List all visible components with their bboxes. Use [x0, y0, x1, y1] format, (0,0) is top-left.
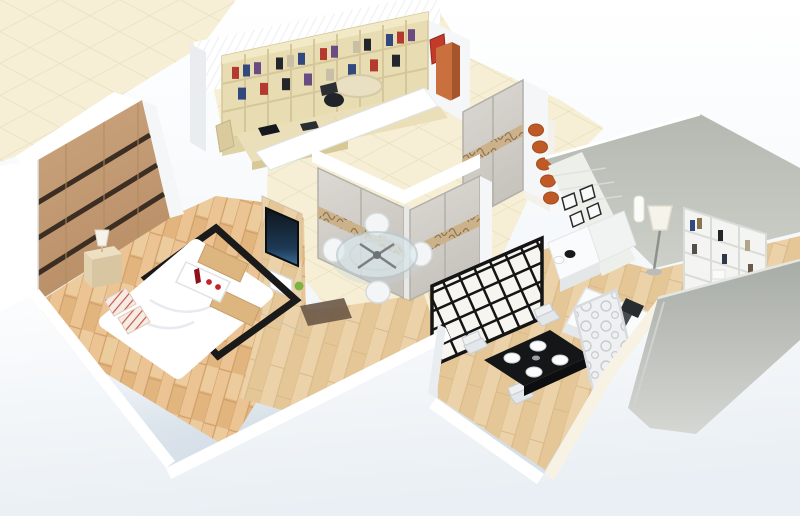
study-left-pillar: [190, 44, 206, 152]
black-bowl: [565, 250, 576, 258]
plate: [552, 355, 568, 365]
left-outer-wall: [0, 160, 38, 312]
apartment-render: [0, 0, 800, 516]
plate: [504, 353, 520, 363]
plate: [554, 256, 564, 263]
isometric-scene: [0, 0, 800, 516]
plate: [526, 367, 542, 377]
vase: [634, 196, 644, 222]
study-office-chair: [324, 93, 344, 107]
round-rug: [334, 75, 382, 97]
plate: [530, 341, 546, 351]
table-lamp: [95, 230, 109, 246]
plant: [295, 282, 304, 291]
